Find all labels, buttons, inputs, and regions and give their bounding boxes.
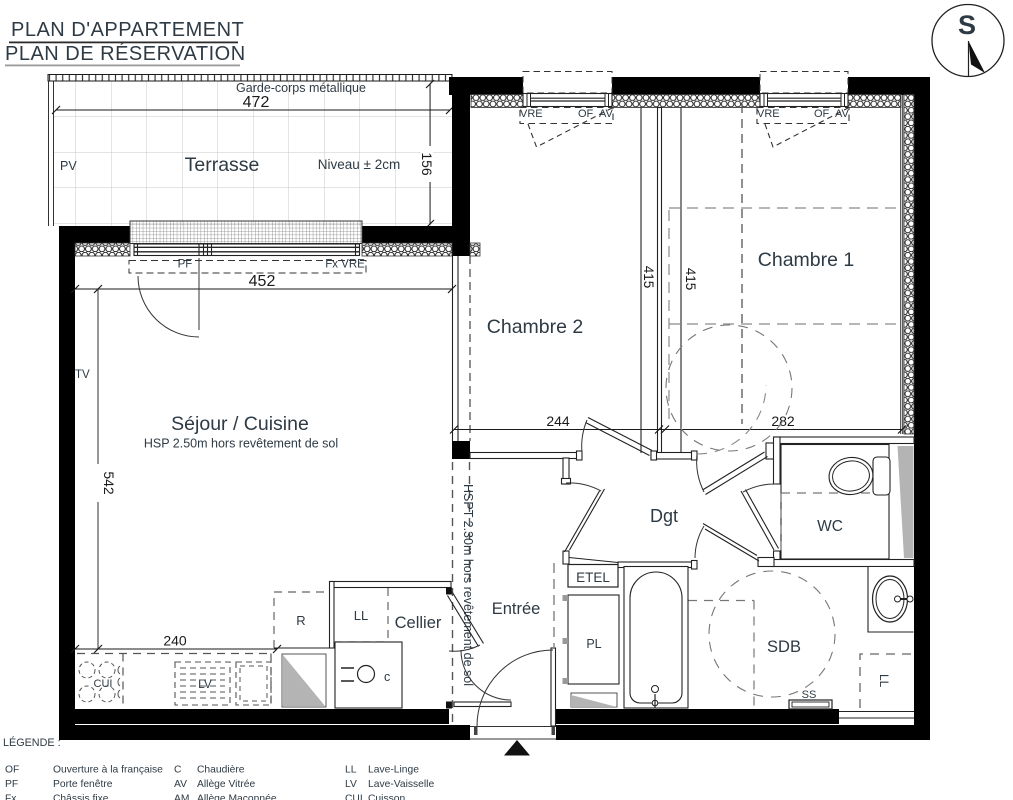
svg-text:Garde-corps métallique: Garde-corps métallique [236,81,366,95]
svg-text:Fx: Fx [5,794,17,800]
svg-text:Niveau ± 2cm: Niveau ± 2cm [318,157,400,172]
svg-text:Lave-Linge: Lave-Linge [368,765,419,776]
svg-text:Chambre 2: Chambre 2 [487,316,583,338]
svg-text:PLAN D'APPARTEMENT: PLAN D'APPARTEMENT [11,19,244,41]
svg-text:LV: LV [345,779,357,790]
svg-text:AV: AV [835,108,850,120]
svg-text:Chambre 1: Chambre 1 [758,249,854,271]
svg-text:PF: PF [5,779,18,790]
svg-text:415: 415 [683,268,698,291]
svg-text:AV: AV [174,779,187,790]
svg-text:LL: LL [345,765,357,776]
svg-text:Allège Maçonnée: Allège Maçonnée [197,794,277,800]
svg-text:452: 452 [249,273,276,290]
svg-text:Chaudière: Chaudière [197,765,245,776]
svg-text:VRE: VRE [520,108,543,120]
svg-text:Cellier: Cellier [395,614,442,632]
svg-text:LÉGENDE :: LÉGENDE : [3,736,61,749]
svg-text:OF: OF [578,108,594,120]
svg-text:542: 542 [101,471,117,495]
svg-text:AV: AV [599,108,614,120]
svg-text:CUI: CUI [94,678,113,690]
svg-text:c: c [384,670,390,684]
svg-text:PLAN DE RÉSERVATION: PLAN DE RÉSERVATION [5,42,246,65]
svg-text:LL: LL [877,674,891,688]
svg-text:VRE: VRE [757,108,780,120]
svg-text:LV: LV [198,677,212,691]
svg-text:156: 156 [419,152,435,176]
svg-text:Châssis fixe: Châssis fixe [53,794,109,800]
svg-text:SS: SS [802,689,817,701]
svg-text:Dgt: Dgt [650,506,678,526]
svg-text:472: 472 [243,94,270,111]
svg-text:OF: OF [5,765,19,776]
svg-text:Ouverture à la française: Ouverture à la française [53,765,163,776]
svg-text:SDB: SDB [767,638,801,656]
svg-text:PV: PV [60,159,77,173]
svg-text:CUI: CUI [345,794,363,800]
svg-text:282: 282 [771,413,795,429]
svg-text:PL: PL [586,637,601,651]
svg-text:Séjour / Cuisine: Séjour / Cuisine [171,413,309,435]
svg-text:Cuisson: Cuisson [368,794,405,800]
svg-text:ETEL: ETEL [576,570,610,585]
svg-text:PF: PF [178,259,193,271]
svg-text:HSP 2.50m hors revêtement de s: HSP 2.50m hors revêtement de sol [144,437,338,451]
svg-text:Allège Vitrée: Allège Vitrée [197,779,255,790]
svg-text:TV: TV [75,369,90,381]
svg-text:HSPT 2.30m hors revêtement de: HSPT 2.30m hors revêtement de sol [461,484,475,686]
svg-text:244: 244 [546,413,570,429]
svg-text:Terrasse: Terrasse [185,154,260,176]
svg-text:OF: OF [814,108,830,120]
svg-text:Lave-Vaisselle: Lave-Vaisselle [368,779,434,790]
svg-text:415: 415 [641,266,656,289]
svg-text:Fx VRE: Fx VRE [325,259,365,271]
svg-text:WC: WC [817,518,843,535]
svg-text:C: C [174,765,182,776]
svg-text:Entrée: Entrée [492,600,541,618]
svg-text:S: S [958,10,976,40]
svg-text:240: 240 [163,633,187,649]
svg-text:AM: AM [174,794,189,800]
svg-text:Porte fenêtre: Porte fenêtre [53,779,113,790]
svg-text:LL: LL [354,608,368,623]
svg-text:R: R [296,613,305,628]
